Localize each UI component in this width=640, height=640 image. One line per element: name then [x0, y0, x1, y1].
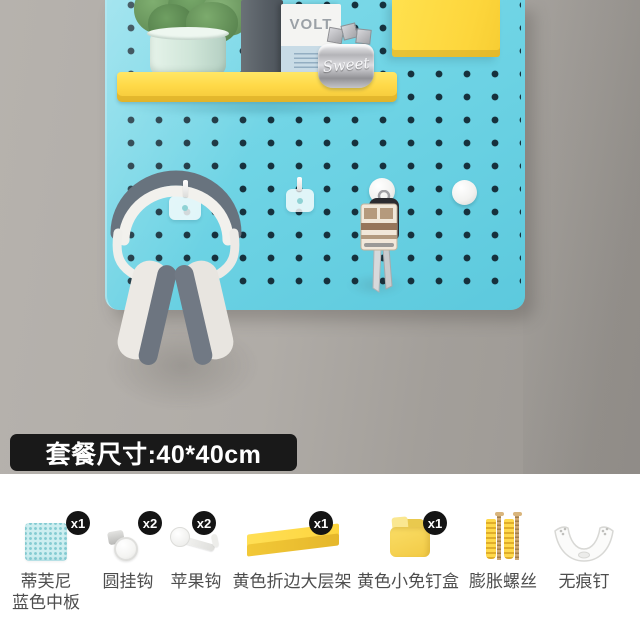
part-round-hook: x2 圆挂钩 — [92, 505, 164, 592]
part-label: 蒂芙尼 — [2, 571, 90, 592]
part-apple-hook-image: x2 — [160, 505, 232, 567]
yellow-box — [392, 0, 500, 57]
product-detail-image: VOLT Sweet — [0, 0, 640, 640]
part-yellow-shelf-image: x1 — [228, 505, 356, 567]
screw-icon — [497, 514, 501, 560]
part-label: 黄色小免钉盒 — [356, 571, 460, 592]
part-apple-hook: x2 苹果钩 — [160, 505, 232, 592]
cube — [355, 28, 371, 44]
apple-hook-icon — [170, 527, 190, 547]
box-front-icon — [390, 527, 430, 557]
product-photo: VOLT Sweet — [0, 0, 640, 474]
part-round-hook-image: x2 — [92, 505, 164, 567]
jar-label: Sweet — [317, 54, 374, 77]
package-contents-row: x1 蒂芙尼 蓝色中板 x2 圆挂钩 x2 苹果钩 — [0, 474, 640, 640]
part-traceless-nail-image — [548, 505, 620, 567]
sweet-jar: Sweet — [318, 44, 374, 88]
part-pegboard-image: x1 — [2, 505, 90, 567]
size-banner: 套餐尺寸:40*40cm — [10, 434, 297, 471]
part-label: 膨胀螺丝 — [462, 571, 544, 592]
part-label: 黄色折边大层架 — [228, 571, 356, 592]
apple-hook-spare — [286, 189, 314, 212]
part-expansion-screws: 膨胀螺丝 — [462, 505, 544, 592]
count-badge: x2 — [138, 511, 162, 535]
part-label: 无痕钉 — [548, 571, 620, 592]
part-yellow-box: x1 黄色小免钉盒 — [356, 505, 460, 592]
sugar-cubes — [326, 24, 374, 46]
plant-pot — [150, 32, 226, 76]
wall-anchor-icon — [486, 519, 496, 559]
size-banner-text: 套餐尺寸:40*40cm — [46, 435, 262, 471]
headphones — [103, 170, 248, 376]
wall-anchor-icon — [504, 519, 514, 559]
part-expansion-screws-image — [462, 505, 544, 567]
round-hook-icon — [114, 537, 138, 561]
hook-pin — [297, 177, 302, 191]
wall-shading — [523, 0, 640, 474]
pegboard-swatch-icon — [25, 523, 67, 561]
traceless-nail-icon — [552, 521, 616, 567]
count-badge: x1 — [309, 511, 333, 535]
count-badge: x1 — [423, 511, 447, 535]
keys-with-keychain — [356, 190, 406, 295]
part-yellow-shelf: x1 黄色折边大层架 — [228, 505, 356, 592]
count-badge: x2 — [192, 511, 216, 535]
part-traceless-nail: 无痕钉 — [548, 505, 620, 592]
book-dark — [241, 0, 283, 76]
headphone-hook-pin — [183, 180, 188, 197]
part-label-line2: 蓝色中板 — [2, 592, 90, 613]
round-hook-spare — [452, 180, 477, 205]
part-yellow-box-image: x1 — [356, 505, 460, 567]
screw-icon — [515, 514, 519, 560]
part-label: 圆挂钩 — [92, 571, 164, 592]
part-pegboard: x1 蒂芙尼 蓝色中板 — [2, 505, 90, 613]
count-badge: x1 — [66, 511, 90, 535]
part-label: 苹果钩 — [160, 571, 232, 592]
